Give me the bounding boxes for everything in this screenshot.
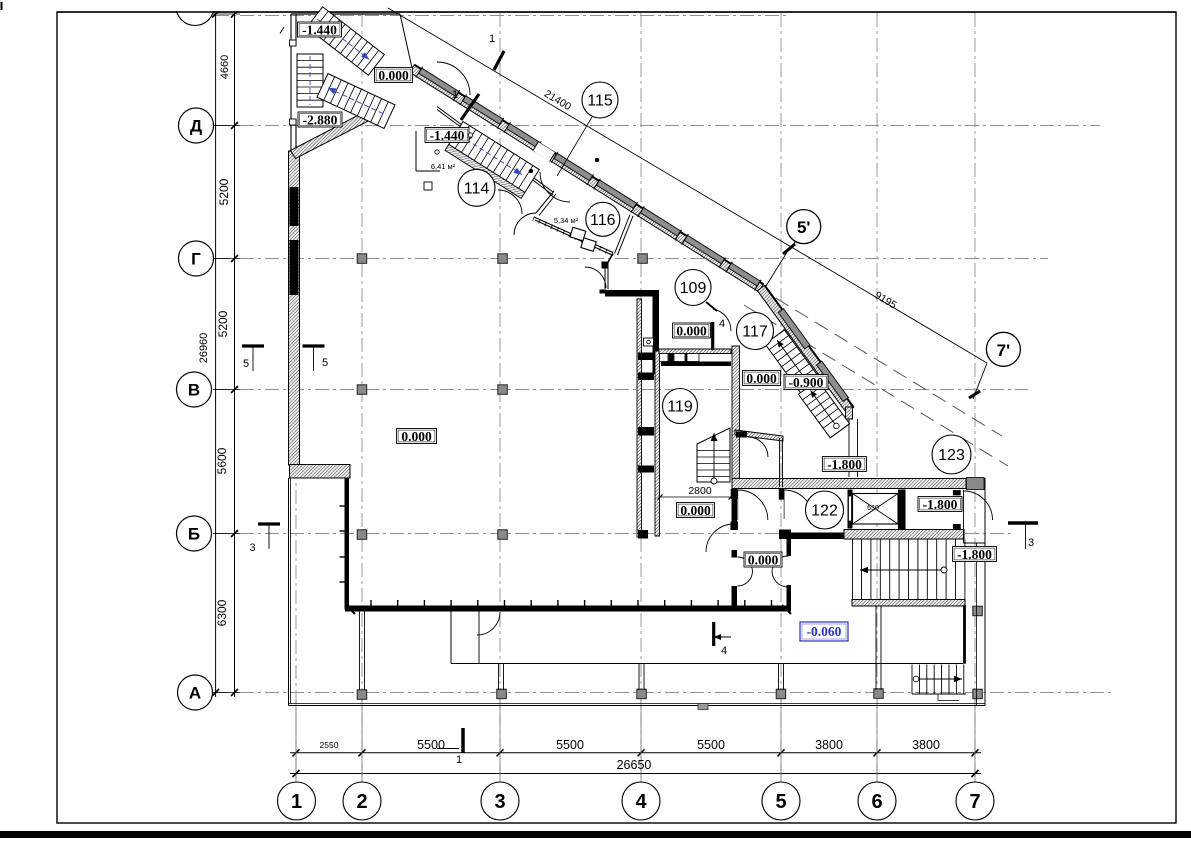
svg-text:-1.800: -1.800 <box>957 547 992 562</box>
svg-text:3: 3 <box>494 791 505 813</box>
svg-text:26650: 26650 <box>617 758 652 772</box>
svg-text:122: 122 <box>811 503 838 520</box>
svg-text:0.000: 0.000 <box>748 552 779 567</box>
svg-text:Д: Д <box>190 117 202 136</box>
svg-text:6300: 6300 <box>215 599 229 626</box>
svg-text:3: 3 <box>249 542 255 554</box>
svg-text:-2.880: -2.880 <box>303 112 338 127</box>
svg-text:2800: 2800 <box>688 485 712 497</box>
svg-text:0.000: 0.000 <box>676 323 707 338</box>
svg-text:5600: 5600 <box>215 447 229 474</box>
svg-text:-1.440: -1.440 <box>302 22 337 37</box>
svg-text:4660: 4660 <box>219 55 231 79</box>
svg-text:123: 123 <box>938 447 965 464</box>
svg-text:0.000: 0.000 <box>378 68 409 83</box>
svg-text:4: 4 <box>719 318 725 330</box>
svg-text:7: 7 <box>969 791 980 813</box>
svg-text:-1.440: -1.440 <box>430 128 465 143</box>
svg-text:26960: 26960 <box>198 333 210 364</box>
svg-text:5500: 5500 <box>697 738 725 752</box>
svg-text:630: 630 <box>867 505 879 512</box>
svg-text:5': 5' <box>797 218 811 237</box>
svg-text:1: 1 <box>291 791 302 813</box>
svg-text:5: 5 <box>243 358 249 370</box>
svg-text:Б: Б <box>188 525 200 544</box>
svg-text:А: А <box>189 684 201 703</box>
svg-text:В: В <box>188 381 200 400</box>
svg-text:0.000: 0.000 <box>680 503 711 518</box>
svg-text:1: 1 <box>452 89 458 101</box>
svg-text:3800: 3800 <box>912 738 940 752</box>
svg-text:Г: Г <box>191 250 201 269</box>
svg-text:-0.900: -0.900 <box>789 375 824 390</box>
svg-text:116: 116 <box>590 212 616 229</box>
svg-text:-1.800: -1.800 <box>923 497 958 512</box>
svg-text:109: 109 <box>680 280 707 297</box>
svg-text:3: 3 <box>1028 537 1034 549</box>
svg-text:-0.060: -0.060 <box>807 624 842 639</box>
svg-text:1: 1 <box>456 754 462 766</box>
svg-text:5: 5 <box>322 357 328 369</box>
svg-text:119: 119 <box>667 399 693 416</box>
svg-text:0.000: 0.000 <box>401 429 432 444</box>
svg-text:4: 4 <box>721 645 727 657</box>
svg-text:5500: 5500 <box>417 738 445 752</box>
svg-text:5200: 5200 <box>217 178 231 205</box>
svg-text:-1.800: -1.800 <box>827 457 862 472</box>
svg-text:2: 2 <box>356 791 367 813</box>
svg-text:114: 114 <box>464 180 490 197</box>
svg-text:2550: 2550 <box>320 740 339 750</box>
svg-text:5: 5 <box>775 791 786 813</box>
svg-text:5500: 5500 <box>556 738 584 752</box>
svg-text:5200: 5200 <box>216 310 230 337</box>
svg-text:1: 1 <box>489 33 495 45</box>
svg-text:3800: 3800 <box>815 738 843 752</box>
svg-text:4: 4 <box>635 791 647 813</box>
svg-text:0.000: 0.000 <box>746 371 777 386</box>
svg-text:6,41 м²: 6,41 м² <box>431 162 456 171</box>
svg-text:115: 115 <box>587 93 613 110</box>
svg-text:7': 7' <box>997 341 1011 360</box>
svg-text:117: 117 <box>742 324 768 341</box>
svg-text:5,34 м²: 5,34 м² <box>554 216 579 225</box>
svg-text:6: 6 <box>871 791 882 813</box>
